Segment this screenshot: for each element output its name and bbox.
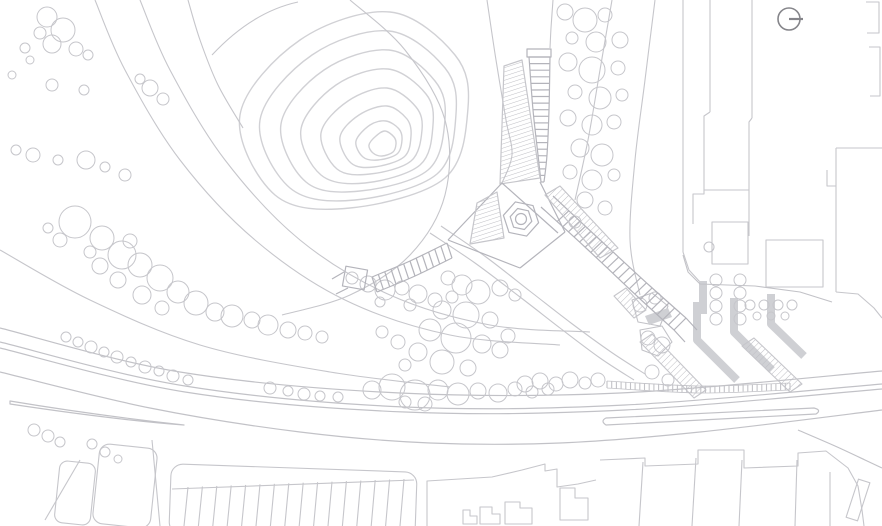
tree-circle <box>612 32 628 48</box>
bldg-wall-2b <box>749 118 752 236</box>
north-arrow <box>778 8 803 30</box>
hex-pavilion-core <box>516 214 527 225</box>
tree-circle <box>42 430 54 442</box>
tree-circle <box>566 32 578 44</box>
tree-circle <box>568 85 582 99</box>
tree-circle <box>298 388 310 400</box>
tree-circle <box>489 384 507 402</box>
bldg-room-2 <box>766 240 823 287</box>
tree-circle <box>157 93 169 105</box>
tree-circle <box>167 370 179 382</box>
tree-circle <box>147 265 173 291</box>
block-c-grid-rung <box>342 481 346 526</box>
tree-circle <box>61 332 71 342</box>
tree-circle <box>221 305 243 327</box>
tree-circle <box>59 206 91 238</box>
path-southwest <box>0 250 450 387</box>
tree-circle <box>20 43 30 53</box>
tree-circle <box>409 343 427 361</box>
bldg-room-1 <box>712 222 748 264</box>
right-arm-hatch <box>545 186 618 258</box>
tree-circle <box>428 380 448 400</box>
tree-circle <box>26 148 40 162</box>
left-arm-rungs-rung <box>404 264 409 279</box>
tree-circle <box>557 4 573 20</box>
right-arm-rungs-rung <box>674 318 686 330</box>
block-c-topline <box>172 480 414 489</box>
block-c-grid-rung <box>328 482 332 526</box>
block-diagonal <box>45 460 80 520</box>
footprint-1 <box>463 510 477 524</box>
tree-circle <box>734 287 746 299</box>
block-c-grid-rung <box>386 480 390 526</box>
tree-circle <box>591 373 605 387</box>
tree-circle <box>51 18 75 42</box>
tree-circle <box>28 424 40 436</box>
tree-circle <box>608 169 620 181</box>
tree-circle <box>79 85 89 95</box>
tree-circle <box>611 61 625 75</box>
tree-circle <box>139 361 151 373</box>
tree-circle <box>482 312 498 328</box>
site-plan-drawing <box>0 0 882 526</box>
tree-circle <box>135 74 145 84</box>
tree-circle <box>55 437 65 447</box>
tree-circle <box>73 337 83 347</box>
tree-circle <box>100 162 110 172</box>
path-west-3 <box>188 0 243 128</box>
tree-circle <box>11 145 21 155</box>
block-c <box>169 464 417 526</box>
right-arm-rungs-rung <box>607 257 619 268</box>
tree-circle <box>579 57 605 83</box>
right-buildings <box>683 0 882 318</box>
contour-8 <box>369 131 396 156</box>
tree-circle <box>84 246 96 258</box>
left-arm-rungs-rung <box>441 246 446 261</box>
tree-circle <box>379 374 405 400</box>
tree-circle <box>509 289 521 301</box>
stair-hatch-3 <box>614 288 646 318</box>
bldg-wall-1b <box>693 112 710 224</box>
hex-pavilion-inner <box>510 209 532 230</box>
tree-circle <box>280 322 296 338</box>
bracket-a <box>866 2 879 33</box>
tree-circle <box>441 271 455 285</box>
contour-1 <box>239 12 468 210</box>
contour-5 <box>321 88 422 175</box>
tree-circle <box>787 300 797 310</box>
tree-circle <box>447 383 469 405</box>
tree-circle <box>315 391 325 401</box>
tree-circle <box>616 89 628 101</box>
tree-circle <box>399 359 411 371</box>
tree-circle <box>363 381 381 399</box>
block-e-v4 <box>795 460 797 526</box>
tree-circle <box>586 32 606 52</box>
tree-circle <box>591 144 613 166</box>
block-c-grid-rung <box>213 486 217 526</box>
tree-circle <box>46 79 58 91</box>
hex-pavilion-outer <box>503 202 538 236</box>
tree-circle <box>298 326 312 340</box>
tree-circle <box>562 372 578 388</box>
tree-circle <box>710 287 722 299</box>
tree-circle <box>53 155 63 165</box>
city-blocks <box>45 440 870 526</box>
footprint-4 <box>560 488 588 520</box>
pavilion <box>332 49 697 342</box>
block-e-v3 <box>739 460 742 526</box>
tree-circle <box>400 380 430 410</box>
right-arm-rungs-rung <box>635 283 647 294</box>
tree-circle <box>710 300 722 312</box>
tree-circle <box>154 366 164 376</box>
block-d-outline <box>427 464 596 526</box>
deck-hatch <box>470 192 504 244</box>
tree-circle <box>430 350 454 374</box>
hill-contours <box>239 12 468 210</box>
left-arm-ext-1 <box>332 272 344 279</box>
block-c-grid-rung <box>227 485 231 526</box>
block-c-grid-rung <box>371 480 375 526</box>
left-arm-rungs-rung <box>422 255 427 270</box>
block-e-v2 <box>692 458 696 526</box>
tree-circle <box>92 258 108 274</box>
block-c-grid-rung <box>198 487 202 526</box>
tree-circle <box>563 165 577 179</box>
tree-circle <box>460 360 476 376</box>
path-arc-top <box>212 2 298 55</box>
tree-circle <box>645 365 659 379</box>
tree-circle <box>83 50 93 60</box>
footprint-2 <box>480 507 500 524</box>
tree-circle <box>391 335 405 349</box>
tree-circle <box>753 312 761 320</box>
left-arm-rungs-rung <box>416 258 421 273</box>
tree-circle <box>559 53 577 71</box>
tree-circle <box>745 300 755 310</box>
top-landing <box>527 49 551 57</box>
tree-circle <box>85 341 97 353</box>
tree-circle <box>111 351 123 363</box>
tree-circle <box>446 291 458 303</box>
right-arm-ext-2 <box>674 330 685 342</box>
tree-circle <box>542 383 554 395</box>
road-median-west <box>10 401 184 425</box>
left-arm-rail-a <box>372 243 447 277</box>
tree-circle <box>508 382 522 396</box>
tree-circle <box>710 313 722 325</box>
plaza <box>607 255 832 398</box>
tree-circle <box>734 274 746 286</box>
block-c-grid-rung <box>299 483 303 526</box>
plan-page <box>0 0 882 526</box>
tree-circle <box>579 377 591 389</box>
tree-circle <box>577 192 593 208</box>
tree-circle <box>108 241 136 269</box>
tree-circle <box>501 329 515 343</box>
tree-circle <box>26 56 34 64</box>
tree-circle <box>167 281 189 303</box>
tree-circle <box>100 447 110 457</box>
left-arm-rungs-rung <box>397 266 402 281</box>
tree-circle <box>470 383 486 399</box>
tree-circle <box>781 312 789 320</box>
block-c-grid-rung <box>256 484 260 526</box>
deck-edge-4 <box>520 232 565 268</box>
left-arm-rungs-rung <box>391 269 396 284</box>
tree-circle <box>183 375 193 385</box>
tree-circle <box>473 335 491 353</box>
tree-circle <box>418 397 432 411</box>
tree-circle <box>155 301 169 315</box>
tree-circle <box>662 374 674 386</box>
tree-circle <box>258 315 278 335</box>
contour-4 <box>301 69 434 184</box>
block-c-grid-rung <box>357 481 361 526</box>
tree-circle <box>560 110 576 126</box>
left-arm-rungs-rung <box>410 261 415 276</box>
street-edge-vertical <box>683 0 700 282</box>
left-arm-rungs-rung <box>435 249 440 264</box>
tree-circle <box>589 87 611 109</box>
tree-circle <box>492 280 508 296</box>
block-c-grid-rung <box>184 487 188 526</box>
tree-circle <box>114 455 122 463</box>
tree-circle <box>69 42 83 56</box>
tree-circle <box>133 286 151 304</box>
deck-edge-3 <box>448 240 520 268</box>
tree-circle <box>142 80 158 96</box>
block-c-grid-rung <box>270 484 274 526</box>
left-arm-ext-2 <box>336 288 348 294</box>
tree-circle <box>316 331 328 343</box>
tree-circle <box>119 169 131 181</box>
bracket-b <box>869 47 880 96</box>
tree-circle <box>376 326 388 338</box>
right-arm-rail-b <box>541 207 674 330</box>
street-curve-east <box>630 0 655 295</box>
tree-circle <box>492 342 508 358</box>
tree-circle <box>607 115 621 129</box>
tree-circle <box>333 392 343 402</box>
tree-circle <box>77 151 95 169</box>
left-arm-rungs-rung <box>429 252 434 267</box>
corridor-right-edge <box>550 0 553 48</box>
tree-circle <box>110 272 126 288</box>
tree-circle <box>283 386 293 396</box>
top-rail-right <box>544 57 550 182</box>
footprint-3 <box>505 502 532 524</box>
tree-circle <box>409 285 427 303</box>
block-c-grid-rung <box>400 479 404 526</box>
east-bldg-corner <box>836 292 882 318</box>
east-bldg-step <box>827 170 836 186</box>
right-arm-rungs-rung <box>624 273 636 284</box>
right-arm-rungs-rung <box>613 262 625 273</box>
block-c-grid-rung <box>314 482 318 526</box>
tree-circle <box>34 27 46 39</box>
tree-circle <box>453 302 479 328</box>
tree-circle <box>433 301 451 319</box>
tree-circle <box>43 35 61 53</box>
tree-circle <box>87 439 97 449</box>
block-e-v1 <box>639 462 643 526</box>
tree-circle <box>573 8 597 32</box>
tree-circle <box>184 291 208 315</box>
tree-circle <box>43 223 53 233</box>
right-arm-rungs-rung <box>618 267 630 278</box>
block-c-grid-rung <box>285 483 289 526</box>
tree-circle <box>582 170 602 190</box>
right-arm-rungs-rung <box>629 278 641 289</box>
tree-circle <box>532 373 548 389</box>
block-c-grid-rung <box>242 485 246 526</box>
tree-circle <box>598 201 612 215</box>
tree-circle <box>37 7 57 27</box>
tree-circle <box>8 71 16 79</box>
tree-circle <box>53 233 67 247</box>
